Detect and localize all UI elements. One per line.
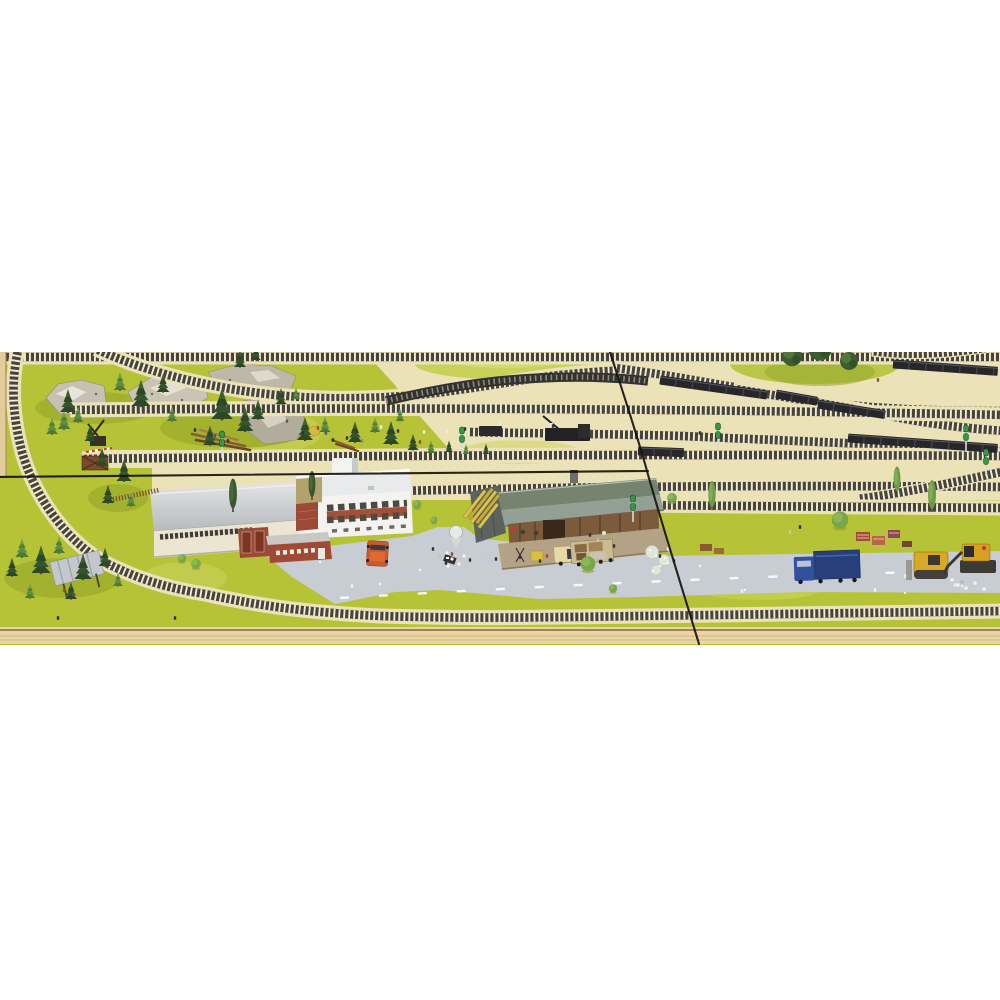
figure	[380, 425, 382, 428]
figure	[519, 555, 521, 558]
figure	[874, 588, 876, 591]
figure	[302, 431, 304, 434]
figure	[499, 422, 501, 425]
hall-door	[242, 532, 251, 553]
pallet	[714, 548, 724, 554]
figure	[597, 538, 599, 541]
decid-tree	[413, 500, 422, 510]
brick-wall-panel	[296, 502, 318, 531]
dozer-blade	[906, 560, 912, 580]
baseboard-edge-left	[0, 352, 6, 477]
figure	[351, 584, 353, 587]
dozer-tracks	[914, 570, 948, 579]
figure	[495, 557, 497, 560]
figure	[552, 424, 554, 427]
roof-vent	[368, 486, 374, 490]
figure	[589, 533, 591, 536]
figure	[286, 419, 288, 422]
dozer-cab	[928, 555, 940, 565]
figure	[346, 436, 348, 439]
figure	[419, 440, 421, 443]
figure	[325, 431, 327, 434]
decid-tree	[667, 493, 677, 504]
track-goods	[636, 505, 1000, 508]
barrel	[521, 530, 525, 534]
crate	[574, 544, 587, 553]
figure	[317, 426, 319, 429]
model-railway-layout-photo	[0, 0, 1000, 1000]
truck-cargo-tarp	[813, 550, 860, 580]
decid-tree	[832, 511, 849, 530]
figure	[954, 583, 956, 586]
figure	[613, 544, 615, 547]
decid-tree	[609, 584, 617, 594]
brick-stack	[872, 536, 885, 545]
brick-stack	[856, 532, 870, 541]
figure	[194, 428, 196, 431]
figure	[789, 530, 791, 533]
figure	[227, 439, 229, 442]
figure	[659, 554, 661, 557]
figure	[877, 378, 879, 381]
pallet	[902, 541, 912, 547]
figure	[904, 574, 906, 577]
decid-tree	[431, 517, 438, 525]
figure	[73, 593, 75, 596]
figure	[546, 554, 548, 557]
crate	[588, 542, 603, 552]
figure	[63, 588, 65, 591]
brick-stack	[888, 530, 900, 538]
yellow-crate	[531, 551, 543, 561]
pallet	[700, 544, 712, 551]
decid-tree	[178, 554, 186, 564]
figure	[214, 434, 216, 437]
handcar	[479, 426, 502, 436]
figure	[445, 561, 447, 564]
figure	[741, 589, 743, 592]
excavator-base	[960, 560, 996, 573]
figure	[423, 430, 425, 433]
figure	[57, 616, 59, 619]
photo-frame-top	[0, 0, 1000, 352]
sack	[602, 531, 606, 535]
orange-van	[366, 540, 389, 566]
figure	[446, 429, 448, 432]
decid-tree	[581, 556, 596, 573]
figure	[174, 616, 176, 619]
figure	[432, 547, 434, 550]
figure	[361, 439, 363, 442]
photo-frame-bottom	[0, 645, 1000, 1000]
figure	[539, 559, 541, 562]
station-annex	[266, 532, 332, 563]
van-windshield	[370, 545, 385, 551]
figure	[481, 554, 483, 557]
figure	[469, 558, 471, 561]
excavator-cab	[964, 546, 974, 557]
figure	[699, 431, 701, 434]
figure	[332, 438, 334, 441]
decid-tree	[191, 559, 201, 570]
truck-cab	[794, 556, 815, 581]
annex-door	[318, 548, 325, 559]
figure	[451, 552, 453, 555]
figure	[799, 525, 801, 528]
model-railway-photo-page	[0, 0, 1000, 1000]
barrel	[534, 531, 538, 535]
figure	[439, 555, 441, 558]
ddecid-tree	[840, 352, 858, 370]
truck-windshield	[797, 561, 811, 567]
freight-wagon-rake	[638, 447, 684, 458]
mixer-drum	[450, 526, 463, 539]
figure	[397, 429, 399, 432]
red-barrel	[510, 526, 515, 531]
hall-door	[255, 531, 264, 552]
track-main-1	[82, 455, 1000, 459]
baseboard-edge-bottom	[0, 627, 1000, 644]
